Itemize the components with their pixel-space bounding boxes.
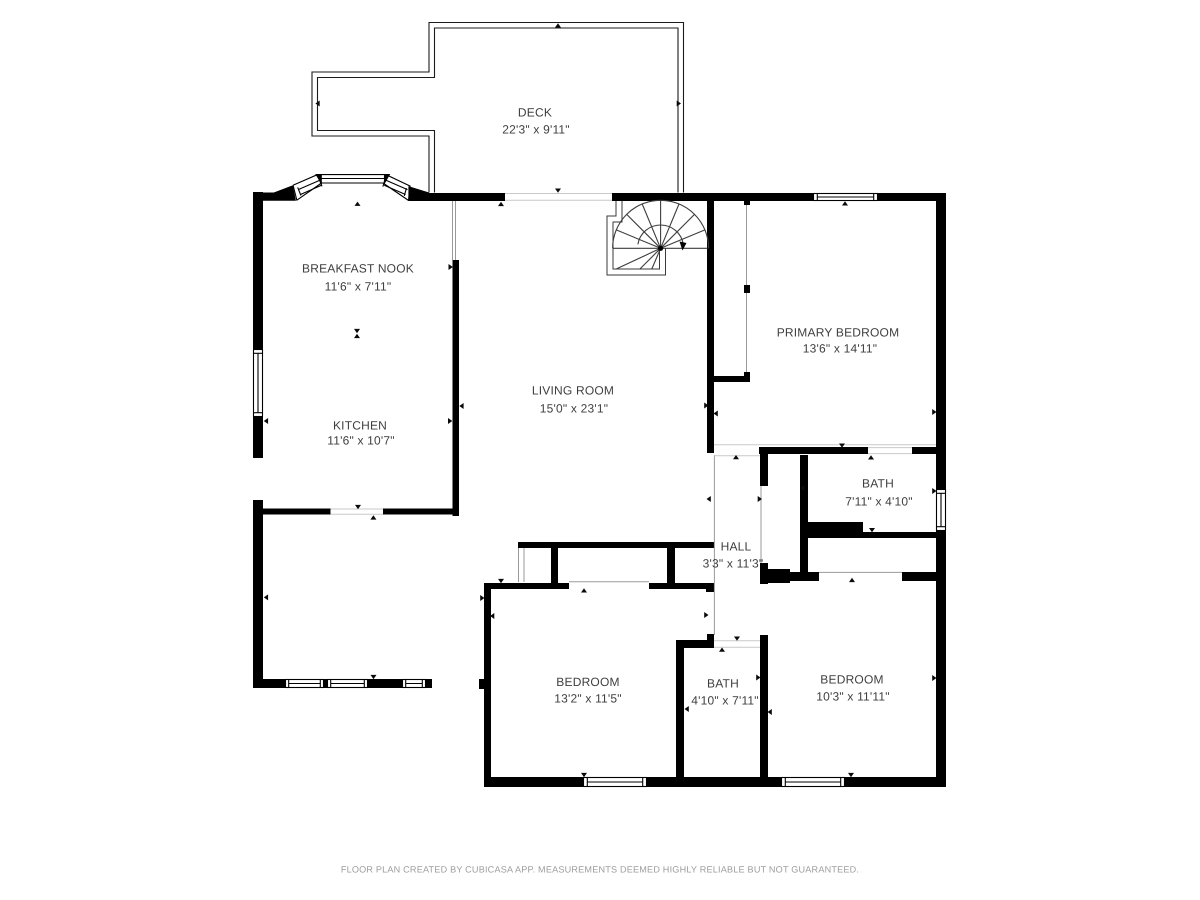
svg-text:BREAKFAST NOOK: BREAKFAST NOOK	[302, 262, 414, 276]
svg-text:11'6" x 10'7": 11'6" x 10'7"	[327, 433, 395, 447]
svg-text:PRIMARY BEDROOM: PRIMARY BEDROOM	[777, 325, 900, 339]
svg-text:BATH: BATH	[862, 477, 894, 491]
svg-text:LIVING ROOM: LIVING ROOM	[532, 384, 614, 398]
svg-text:3'3" x 11'3": 3'3" x 11'3"	[703, 557, 764, 571]
svg-text:4'10" x 7'11": 4'10" x 7'11"	[691, 694, 759, 708]
svg-text:22'3" x 9'11": 22'3" x 9'11"	[502, 122, 570, 136]
svg-text:DECK: DECK	[518, 106, 552, 120]
svg-text:13'6" x 14'11": 13'6" x 14'11"	[803, 342, 877, 356]
svg-text:BATH: BATH	[707, 677, 739, 691]
svg-text:7'11" x 4'10": 7'11" x 4'10"	[845, 495, 913, 509]
svg-text:10'3" x 11'11": 10'3" x 11'11"	[816, 690, 890, 704]
svg-text:11'6" x 7'11": 11'6" x 7'11"	[325, 279, 392, 293]
svg-text:BEDROOM: BEDROOM	[820, 673, 883, 687]
svg-text:15'0" x 23'1": 15'0" x 23'1"	[540, 402, 608, 416]
svg-text:KITCHEN: KITCHEN	[333, 418, 387, 432]
svg-text:BEDROOM: BEDROOM	[556, 675, 619, 689]
svg-text:FLOOR PLAN CREATED BY CUBICASA: FLOOR PLAN CREATED BY CUBICASA APP. MEAS…	[341, 865, 859, 875]
svg-text:13'2" x 11'5": 13'2" x 11'5"	[554, 692, 622, 706]
svg-text:HALL: HALL	[721, 540, 752, 554]
